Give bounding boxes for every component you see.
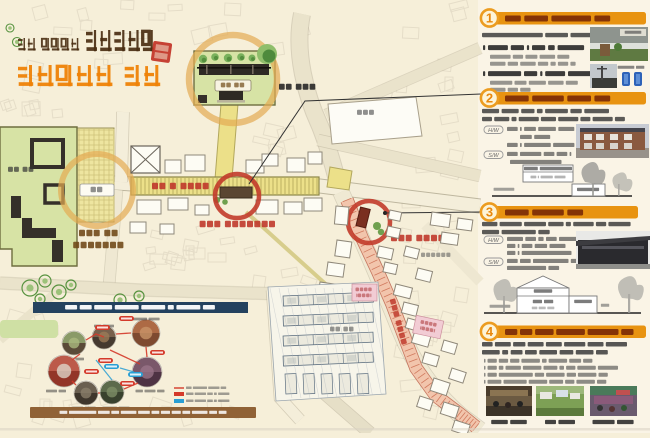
svg-text:S/W: S/W: [488, 260, 499, 266]
svg-text:4: 4: [486, 324, 494, 339]
svg-text:H/W: H/W: [488, 238, 500, 244]
svg-text:3: 3: [486, 205, 493, 220]
svg-text:1: 1: [486, 11, 493, 26]
svg-text:H/W: H/W: [488, 128, 500, 134]
svg-text:S/W: S/W: [488, 153, 499, 159]
svg-text:2: 2: [486, 91, 493, 106]
